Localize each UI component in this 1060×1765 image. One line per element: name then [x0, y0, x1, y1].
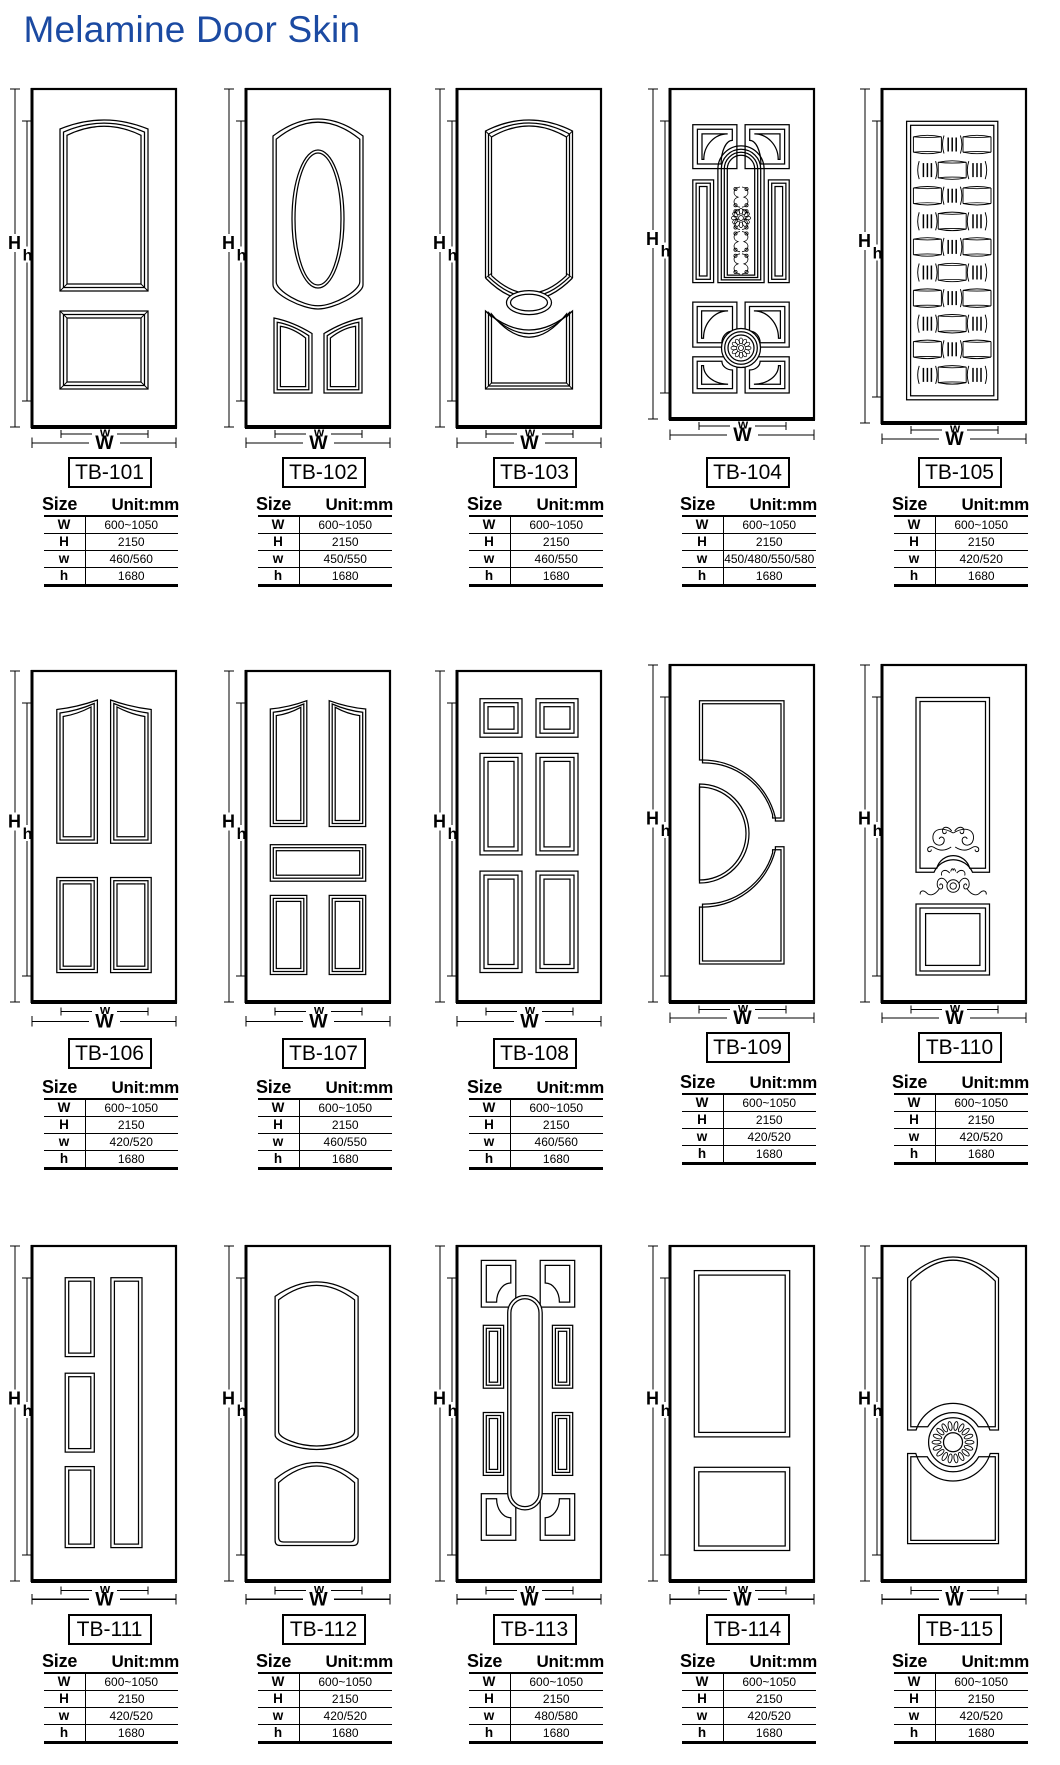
svg-text:H: H	[222, 812, 235, 832]
svg-text:h: h	[661, 244, 671, 261]
svg-text:h: h	[873, 823, 883, 840]
svg-text:W: W	[733, 1007, 752, 1029]
svg-text:H: H	[646, 1388, 659, 1408]
svg-text:H: H	[8, 812, 21, 832]
svg-text:h: h	[23, 248, 33, 265]
svg-text:W: W	[309, 1011, 328, 1033]
svg-text:h: h	[661, 1403, 671, 1420]
svg-text:h: h	[23, 1403, 33, 1420]
svg-text:W: W	[733, 1588, 752, 1610]
svg-text:W: W	[95, 1011, 114, 1033]
svg-text:h: h	[448, 248, 458, 265]
svg-text:W: W	[520, 1588, 539, 1610]
svg-text:H: H	[8, 233, 21, 253]
svg-text:h: h	[23, 826, 33, 843]
svg-text:H: H	[8, 1388, 21, 1408]
svg-text:H: H	[222, 233, 235, 253]
svg-text:H: H	[433, 233, 446, 253]
svg-text:h: h	[448, 826, 458, 843]
svg-text:H: H	[433, 1388, 446, 1408]
svg-text:H: H	[433, 812, 446, 832]
svg-text:h: h	[237, 1403, 247, 1420]
svg-text:H: H	[858, 808, 871, 828]
svg-text:W: W	[309, 1588, 328, 1610]
svg-text:H: H	[646, 229, 659, 249]
svg-text:H: H	[858, 231, 871, 251]
svg-text:W: W	[945, 1588, 964, 1610]
svg-text:W: W	[733, 424, 752, 446]
svg-text:W: W	[95, 1588, 114, 1610]
svg-text:H: H	[222, 1388, 235, 1408]
svg-text:h: h	[661, 823, 671, 840]
svg-text:W: W	[945, 428, 964, 450]
svg-text:h: h	[873, 1403, 883, 1420]
svg-text:W: W	[520, 432, 539, 454]
svg-text:h: h	[448, 1403, 458, 1420]
svg-text:h: h	[237, 248, 247, 265]
svg-text:H: H	[858, 1388, 871, 1408]
svg-text:W: W	[95, 432, 114, 454]
svg-text:W: W	[309, 432, 328, 454]
svg-text:H: H	[646, 808, 659, 828]
svg-text:h: h	[873, 246, 883, 263]
svg-text:W: W	[520, 1011, 539, 1033]
svg-text:W: W	[945, 1007, 964, 1029]
svg-text:h: h	[237, 826, 247, 843]
